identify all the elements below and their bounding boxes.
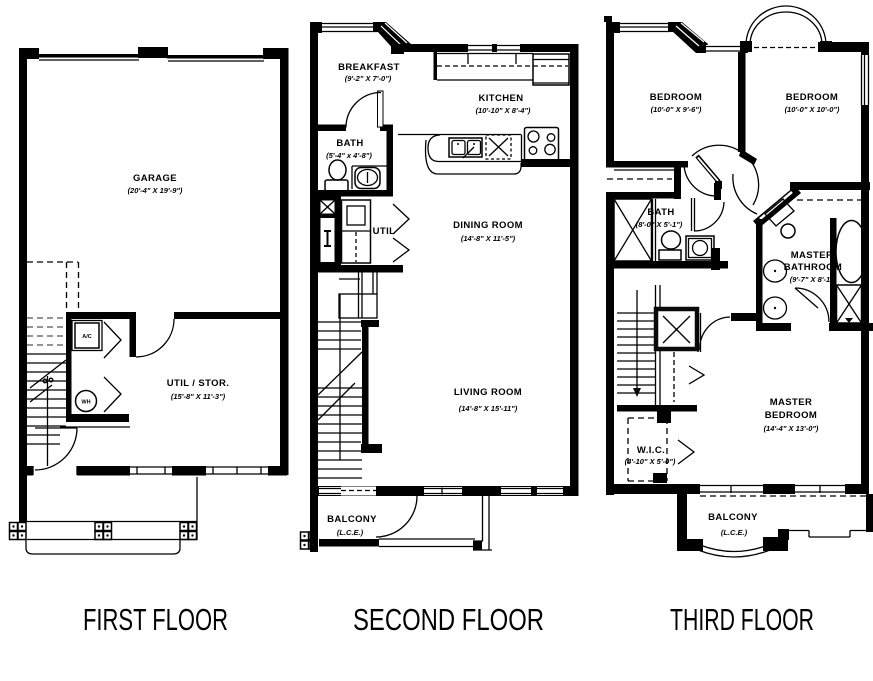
svg-text:(14'-4" X 13'-0"): (14'-4" X 13'-0") (764, 424, 819, 433)
svg-text:MASTER: MASTER (770, 397, 813, 408)
svg-text:(10'-0" X 9'-6"): (10'-0" X 9'-6") (651, 105, 702, 114)
svg-text:THIRD FLOOR: THIRD FLOOR (670, 602, 814, 637)
svg-text:MASTER: MASTER (791, 250, 834, 261)
svg-text:(L.C.E.): (L.C.E.) (721, 528, 748, 537)
svg-text:(14'-8" X 11'-5"): (14'-8" X 11'-5") (461, 234, 516, 243)
svg-text:LIVING ROOM: LIVING ROOM (454, 387, 522, 398)
svg-text:BALCONY: BALCONY (708, 512, 758, 523)
svg-text:BREAKFAST: BREAKFAST (338, 62, 400, 73)
svg-text:SECOND FLOOR: SECOND FLOOR (353, 602, 544, 637)
svg-text:(10'-0" X 10'-0"): (10'-0" X 10'-0") (785, 105, 840, 114)
svg-text:BEDROOM: BEDROOM (786, 92, 838, 103)
svg-text:(14'-8" X 15'-11"): (14'-8" X 15'-11") (459, 404, 518, 413)
svg-text:WH: WH (81, 400, 90, 406)
svg-text:BEDROOM: BEDROOM (765, 410, 817, 421)
svg-text:(20'-4" X 19'-9"): (20'-4" X 19'-9") (128, 186, 183, 195)
svg-text:W.I.C.: W.I.C. (637, 445, 665, 456)
svg-text:GARAGE: GARAGE (133, 173, 177, 184)
svg-text:BEDROOM: BEDROOM (650, 92, 702, 103)
svg-text:KITCHEN: KITCHEN (478, 93, 523, 104)
svg-text:(5'-4" x 4'-8"): (5'-4" x 4'-8") (326, 151, 372, 160)
svg-text:(4'-10" X 5'-0"): (4'-10" X 5'-0") (625, 457, 676, 466)
svg-text:BATH: BATH (336, 138, 363, 149)
svg-text:UTIL: UTIL (373, 226, 396, 237)
svg-text:(9'-7" X 8'-1"): (9'-7" X 8'-1") (790, 275, 837, 284)
svg-text:A/C: A/C (82, 334, 92, 340)
svg-text:(9'-2" X 7'-0"): (9'-2" X 7'-0") (345, 74, 392, 83)
svg-text:BATH: BATH (647, 207, 674, 218)
svg-text:UTIL / STOR.: UTIL / STOR. (167, 378, 230, 389)
svg-text:BALCONY: BALCONY (327, 514, 377, 525)
svg-text:(8'-0" X 5'-1"): (8'-0" X 5'-1") (636, 220, 683, 229)
svg-text:(15'-8" X 11'-3"): (15'-8" X 11'-3") (171, 392, 226, 401)
svg-text:DINING ROOM: DINING ROOM (453, 220, 523, 231)
svg-text:(L.C.E.): (L.C.E.) (337, 528, 364, 537)
svg-text:FIRST FLOOR: FIRST FLOOR (83, 602, 228, 637)
svg-text:BATHROOM: BATHROOM (784, 262, 842, 273)
svg-text:(10'-10" X 8'-4"): (10'-10" X 8'-4") (476, 106, 531, 115)
